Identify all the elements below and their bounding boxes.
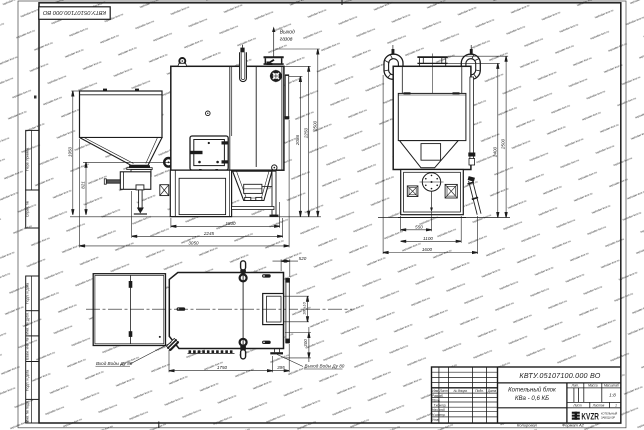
svg-text:Инв. № дубл.: Инв. № дубл. xyxy=(25,312,29,334)
svg-text:1:8: 1:8 xyxy=(609,393,616,399)
svg-text:1750: 1750 xyxy=(217,365,228,370)
svg-text:Лит.: Лит. xyxy=(571,384,580,388)
svg-text:550: 550 xyxy=(415,224,423,229)
svg-text:Взам. инв. №: Взам. инв. № xyxy=(25,337,29,359)
svg-text:Пров.: Пров. xyxy=(432,398,441,402)
svg-text:КВа - 0,6 КБ: КВа - 0,6 КБ xyxy=(515,395,549,402)
svg-text:КВТУ.05107100.000 ВО: КВТУ.05107100.000 ВО xyxy=(519,371,600,380)
svg-text:газов: газов xyxy=(280,36,293,42)
svg-text:Н.контр.: Н.контр. xyxy=(432,413,446,417)
svg-text:1100: 1100 xyxy=(423,236,433,241)
svg-text:Копировал: Копировал xyxy=(517,422,538,427)
svg-text:520: 520 xyxy=(299,256,307,261)
svg-text:Подп. и дата: Подп. и дата xyxy=(25,283,29,304)
svg-text:1600: 1600 xyxy=(422,247,433,252)
svg-text:2500: 2500 xyxy=(501,138,506,150)
svg-text:Вход Воды Ду 80: Вход Воды Ду 80 xyxy=(96,361,133,366)
svg-text:Инв. № подл.: Инв. № подл. xyxy=(25,400,29,422)
svg-text:КОТЕЛЬНЫЙ: КОТЕЛЬНЫЙ xyxy=(601,412,617,416)
svg-text:KVZR: KVZR xyxy=(581,411,599,421)
svg-text:Нач.отд.: Нач.отд. xyxy=(432,408,446,412)
svg-text:Выход: Выход xyxy=(280,30,295,36)
svg-text:Справ. №: Справ. № xyxy=(25,201,29,217)
svg-text:Лист: Лист xyxy=(439,389,449,393)
svg-text:Дата: Дата xyxy=(487,389,497,393)
svg-text:Лист: Лист xyxy=(572,404,582,408)
svg-text:Подп. и дата: Подп. и дата xyxy=(25,370,29,391)
svg-text:Формат А2: Формат А2 xyxy=(562,422,585,427)
svg-text:Масштаб: Масштаб xyxy=(604,384,619,388)
svg-text:Утв.: Утв. xyxy=(432,418,439,422)
svg-text:Котельный блок: Котельный блок xyxy=(508,387,557,394)
svg-text:2500: 2500 xyxy=(312,120,317,132)
svg-text:Листов: Листов xyxy=(592,404,605,408)
svg-text:КВТУ.05107100.000 ВО: КВТУ.05107100.000 ВО xyxy=(42,9,106,15)
svg-text:100±10: 100±10 xyxy=(303,301,307,315)
svg-text:№ докум.: № докум. xyxy=(453,389,467,393)
svg-text:Т.контр.: Т.контр. xyxy=(434,403,447,407)
svg-text:Разраб.: Разраб. xyxy=(432,394,444,398)
svg-text:1950: 1950 xyxy=(67,146,72,157)
svg-text:3050: 3050 xyxy=(188,240,199,245)
svg-text:1: 1 xyxy=(615,404,617,408)
svg-text:2250: 2250 xyxy=(303,127,308,139)
svg-text:300: 300 xyxy=(303,339,308,347)
svg-text:Масса: Масса xyxy=(588,384,598,388)
svg-text:Подп.: Подп. xyxy=(475,389,484,393)
svg-text:2245: 2245 xyxy=(203,231,215,236)
svg-text:Выход Воды Ду 80: Выход Воды Ду 80 xyxy=(305,364,345,369)
svg-text:Изм: Изм xyxy=(432,389,439,393)
svg-text:1800: 1800 xyxy=(225,221,236,226)
svg-text:395: 395 xyxy=(277,365,285,370)
svg-text:821: 821 xyxy=(81,181,86,189)
svg-text:2400: 2400 xyxy=(492,146,497,158)
svg-text:ЗАВОД КЗР: ЗАВОД КЗР xyxy=(601,415,615,419)
svg-text:2086: 2086 xyxy=(295,134,300,146)
svg-text:Перв. примен.: Перв. примен. xyxy=(25,147,29,171)
